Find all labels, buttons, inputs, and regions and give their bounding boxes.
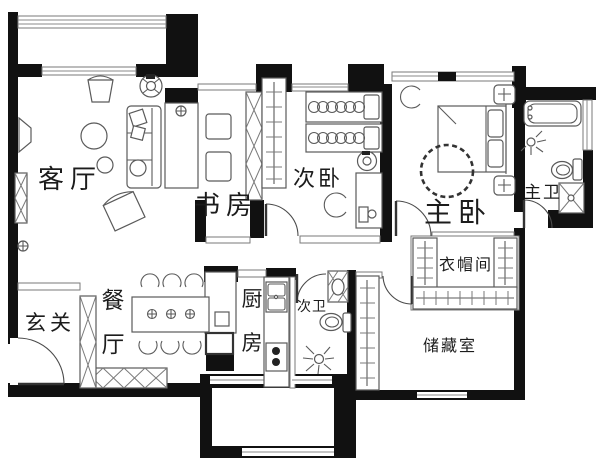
room-label-master: 主卧 xyxy=(424,197,492,229)
study-stool2-icon xyxy=(206,152,231,181)
bedroom2 xyxy=(262,78,382,228)
floorplan-svg: 客厅 书房 次卧 主卧 主卫 衣帽间 储藏室 次卫 玄关 餐 厅 厨 房 xyxy=(0,0,600,476)
room-label-bedroom2: 次卧 xyxy=(293,166,343,191)
coffee-table-icon xyxy=(81,123,107,149)
dining-room xyxy=(80,274,209,388)
armchair-bottom-icon xyxy=(102,188,145,231)
storage-room xyxy=(356,276,379,390)
sink-cabinet-icon xyxy=(328,271,348,302)
shower-light-icon xyxy=(303,346,334,374)
single-bed1-icon xyxy=(306,92,382,122)
storage-door xyxy=(383,276,412,304)
closet-left-icon xyxy=(413,238,437,288)
svg-text:房: 房 xyxy=(242,331,263,355)
bedroom2-door xyxy=(266,204,298,236)
svg-text:厅: 厅 xyxy=(102,332,125,357)
svg-text:餐: 餐 xyxy=(102,288,125,313)
room-label-dining: 餐 厅 xyxy=(102,288,125,357)
room-label-entry: 玄关 xyxy=(25,311,75,335)
toilet2-icon xyxy=(320,313,351,332)
wardrobe-icon xyxy=(262,78,286,188)
plates-icon xyxy=(147,309,195,319)
floorplan: 客厅 书房 次卧 主卧 主卫 衣帽间 储藏室 次卫 玄关 餐 厅 厨 房 xyxy=(0,0,600,476)
tv-cabinet-icon xyxy=(15,173,27,223)
room-label-kitchen: 厨 房 xyxy=(242,287,263,355)
master-bath-door xyxy=(524,200,552,228)
sofa-icon xyxy=(127,106,161,188)
bath2 xyxy=(303,271,351,374)
room-label-bath2: 次卫 xyxy=(297,299,327,315)
living-room xyxy=(15,74,162,251)
chair-icon xyxy=(324,193,346,217)
study-stool1-icon xyxy=(206,114,231,139)
column-marker-icon xyxy=(18,241,28,251)
flower-marker-icon xyxy=(176,106,186,116)
sink-icon xyxy=(266,282,287,312)
shower-icon xyxy=(559,183,584,213)
stove-icon xyxy=(266,343,287,371)
study xyxy=(165,92,262,200)
nightstand-top-icon xyxy=(494,85,515,104)
tv-icon xyxy=(19,118,31,152)
bath2-door xyxy=(297,274,326,303)
room-label-living: 客厅 xyxy=(38,165,102,194)
room-label-master-bath: 主卫 xyxy=(524,183,562,202)
svg-text:厨: 厨 xyxy=(242,287,263,311)
armchair-top-icon xyxy=(88,76,113,102)
master-bedroom xyxy=(401,85,515,197)
room-label-closet: 衣帽间 xyxy=(439,256,493,274)
bathtub-icon xyxy=(524,101,581,126)
toilet-icon xyxy=(552,159,583,180)
closet-right-icon xyxy=(494,238,517,288)
desk-icon xyxy=(356,173,382,228)
single-bed2-icon xyxy=(306,124,382,152)
cabinet-column-icon xyxy=(80,296,96,388)
nightstand-bottom-icon xyxy=(494,176,515,195)
storage-closet-icon xyxy=(356,276,379,390)
bookshelf-icon xyxy=(246,92,262,200)
room-label-study: 书房 xyxy=(194,191,258,220)
ceiling-fan-icon xyxy=(140,74,162,97)
entry-door xyxy=(10,338,64,385)
fan-icon xyxy=(358,151,377,171)
corner-chair-icon xyxy=(401,86,420,108)
room-label-storage: 储藏室 xyxy=(423,337,477,355)
closet-bottom-icon xyxy=(413,287,517,309)
island-icon xyxy=(205,272,236,354)
